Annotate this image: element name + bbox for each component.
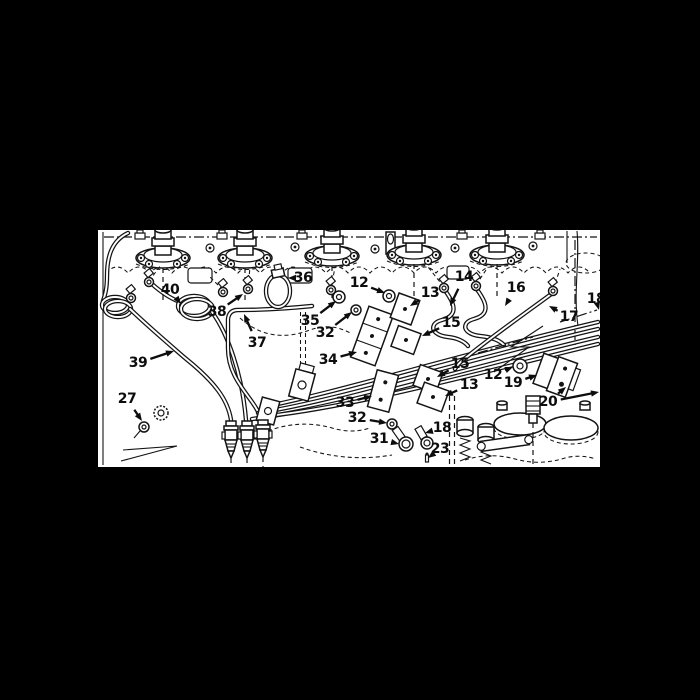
callout-label-37: 37 xyxy=(248,335,266,351)
callout-label-23: 23 xyxy=(431,441,449,457)
callout-label-12-right: 12 xyxy=(484,367,502,383)
callout-label-20: 20 xyxy=(539,394,558,410)
callout-label-40: 40 xyxy=(161,282,180,298)
nut-35 xyxy=(333,291,345,303)
callout-label-27: 27 xyxy=(118,391,136,407)
stud-cap-2 xyxy=(580,401,590,410)
callout-label-16: 16 xyxy=(507,280,525,296)
callout-label-13-lower: 13 xyxy=(460,377,478,393)
callout-label-18-lower: 18 xyxy=(433,420,451,436)
stud-cap-1 xyxy=(497,401,507,410)
callout-label-15-lower: 15 xyxy=(451,356,469,372)
callout-label-15-upper: 15 xyxy=(442,315,460,331)
nut-12-upper xyxy=(383,290,395,302)
callout-label-13-upper: 13 xyxy=(421,285,439,301)
callout-label-32-upper: 32 xyxy=(316,325,334,341)
callout-label-31: 31 xyxy=(370,431,388,447)
callout-label-19: 19 xyxy=(504,375,522,391)
callout-label-33: 33 xyxy=(336,395,354,411)
pin-23 xyxy=(426,453,429,463)
callout-label-14: 14 xyxy=(455,269,474,285)
callout-label-38: 38 xyxy=(208,304,226,320)
callout-label-17: 17 xyxy=(560,309,578,325)
nut-12-right xyxy=(513,359,527,373)
washer-32-upper xyxy=(351,305,361,315)
callout-label-39: 39 xyxy=(129,355,147,371)
callout-label-12-upper: 12 xyxy=(350,275,368,291)
callout-label-34: 34 xyxy=(319,352,338,368)
callout-label-36: 36 xyxy=(294,270,312,286)
technical-diagram: 3640383739353234121314161718151513333231… xyxy=(0,0,700,700)
callout-label-32-lower: 32 xyxy=(348,410,366,426)
screenshot-stage: 3640383739353234121314161718151513333231… xyxy=(0,0,700,700)
